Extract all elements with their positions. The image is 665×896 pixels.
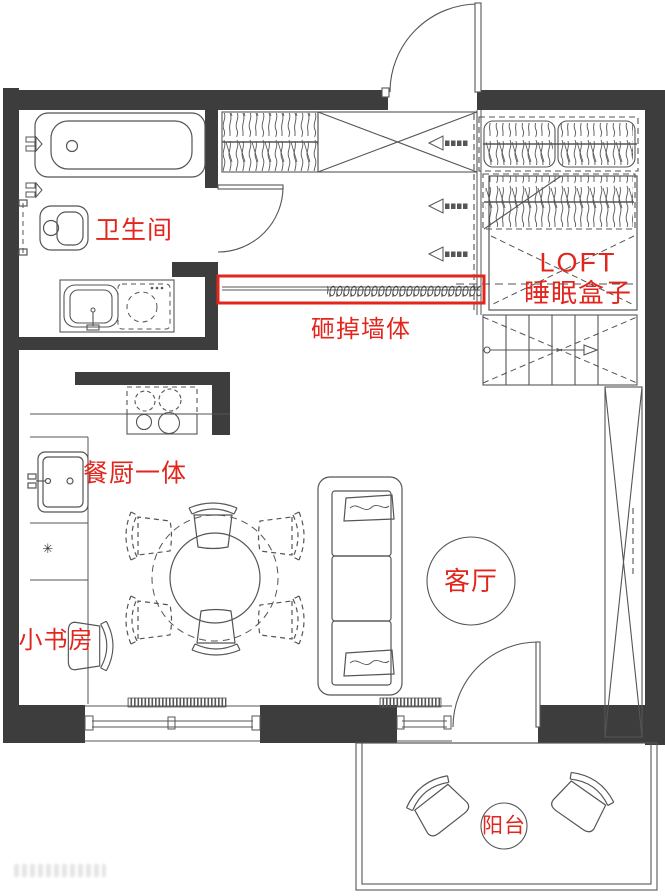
watermark bbox=[14, 864, 106, 877]
floor-plan-drawing bbox=[0, 0, 665, 896]
kitchen-sink bbox=[28, 452, 88, 512]
washing-machine bbox=[118, 284, 170, 329]
window bbox=[85, 706, 260, 741]
sofa-pillow bbox=[344, 650, 394, 676]
dining-chairs bbox=[126, 503, 304, 655]
study-label: 小书房 bbox=[19, 629, 94, 653]
loft-label-line1: LOFT bbox=[539, 250, 616, 277]
floor-plan: 卫生间 砸掉墙体 LOFT 睡眠盒子 餐厨一体 小书房 客厅 阳台 ✳ bbox=[0, 0, 665, 896]
direction-arrows-icon bbox=[429, 136, 468, 261]
hanging-wardrobe bbox=[222, 112, 318, 172]
loft-label-line2: 睡眠盒子 bbox=[524, 280, 632, 306]
cooktop bbox=[127, 387, 197, 434]
sofa bbox=[318, 477, 402, 695]
tall-cabinet-x bbox=[605, 387, 642, 737]
demolish-wall-label: 砸掉墙体 bbox=[311, 318, 411, 342]
stairs bbox=[483, 315, 637, 385]
kitchen-dining-label: 餐厨一体 bbox=[83, 462, 187, 487]
balcony-door bbox=[453, 642, 540, 727]
entry-door bbox=[382, 3, 481, 97]
water-valve-icon bbox=[26, 137, 42, 197]
living-room-label: 客厅 bbox=[444, 568, 498, 594]
radiator bbox=[128, 698, 226, 707]
bathtub bbox=[35, 113, 205, 177]
bathroom-door bbox=[218, 185, 283, 252]
bathroom-label: 卫生间 bbox=[95, 219, 173, 244]
sofa-pillow bbox=[344, 495, 394, 521]
asterisk-marker: ✳ bbox=[43, 541, 54, 557]
demolished-wall-scribble bbox=[218, 276, 484, 303]
window bbox=[397, 706, 452, 741]
balcony-label: 阳台 bbox=[482, 816, 526, 837]
toilet bbox=[19, 200, 88, 255]
radiator bbox=[380, 698, 441, 707]
